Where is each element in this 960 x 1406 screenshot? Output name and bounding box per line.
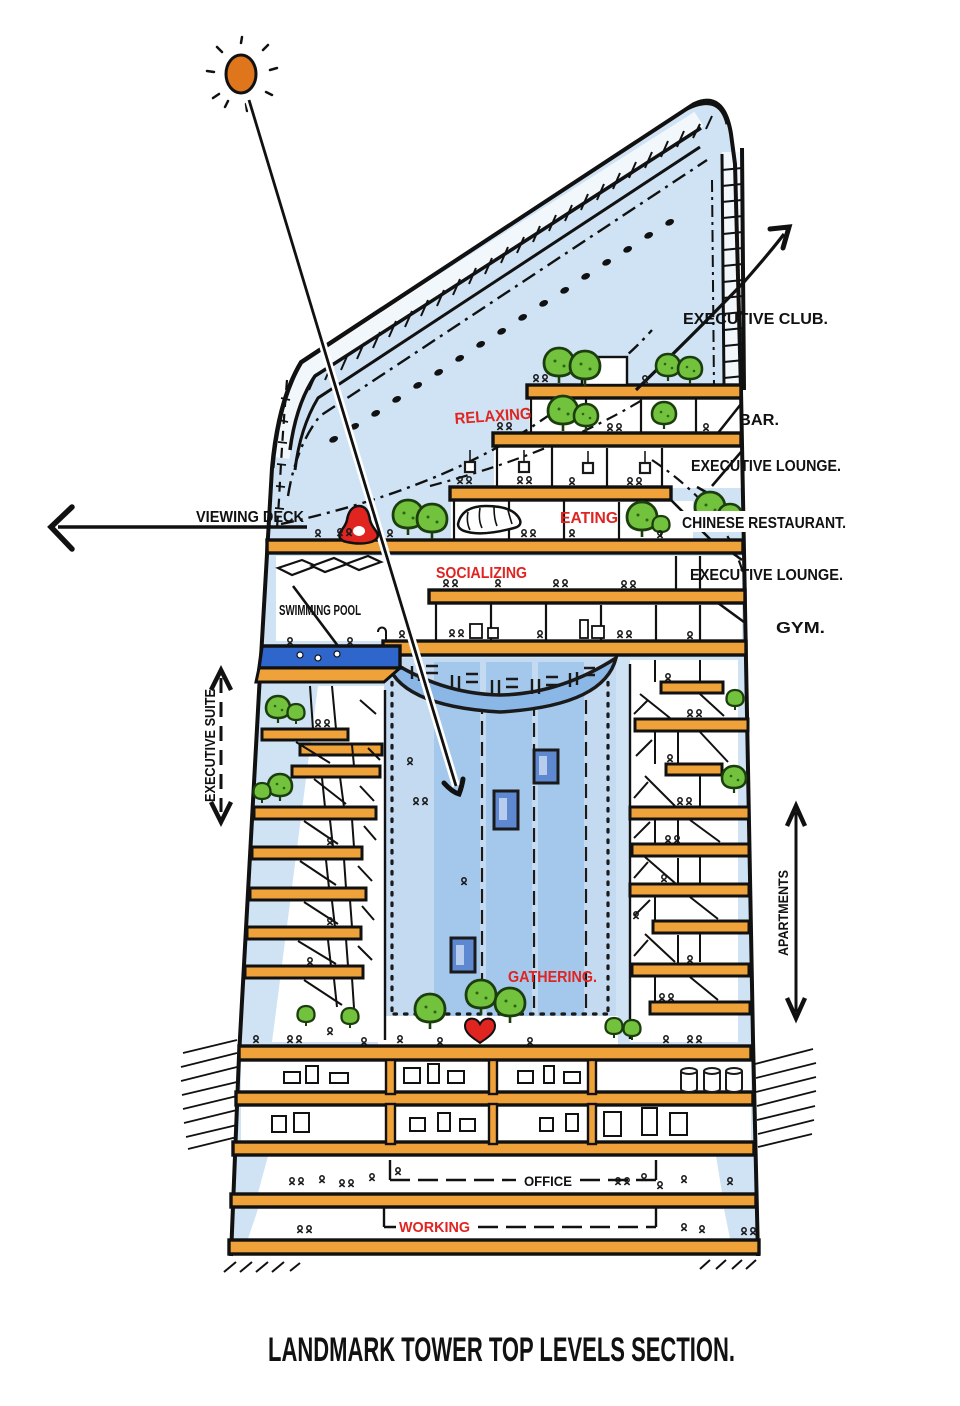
svg-text:VIEWING DECK: VIEWING DECK [196, 509, 304, 526]
svg-text:CHINESE RESTAURANT.: CHINESE RESTAURANT. [682, 515, 846, 532]
svg-text:EXECUTIVE LOUNGE.: EXECUTIVE LOUNGE. [690, 567, 843, 584]
svg-text:EXECUTIVE CLUB.: EXECUTIVE CLUB. [683, 311, 828, 328]
svg-text:APARTMENTS: APARTMENTS [775, 870, 791, 956]
svg-text:EXECUTIVE SUITE: EXECUTIVE SUITE [203, 689, 219, 802]
svg-text:SOCIALIZING: SOCIALIZING [436, 565, 527, 582]
svg-text:SWIMMING POOL: SWIMMING POOL [279, 603, 361, 619]
svg-text:EATING: EATING [560, 510, 618, 527]
svg-text:OFFICE: OFFICE [524, 1173, 572, 1189]
svg-text:GYM.: GYM. [776, 620, 825, 637]
svg-text:WORKING: WORKING [399, 1219, 470, 1236]
svg-text:GATHERING.: GATHERING. [508, 969, 597, 986]
svg-text:BAR.: BAR. [739, 412, 779, 429]
svg-text:EXECUTIVE LOUNGE.: EXECUTIVE LOUNGE. [691, 458, 841, 475]
svg-text:LANDMARK TOWER TOP LEVELS SECT: LANDMARK TOWER TOP LEVELS SECTION. [268, 1331, 735, 1369]
